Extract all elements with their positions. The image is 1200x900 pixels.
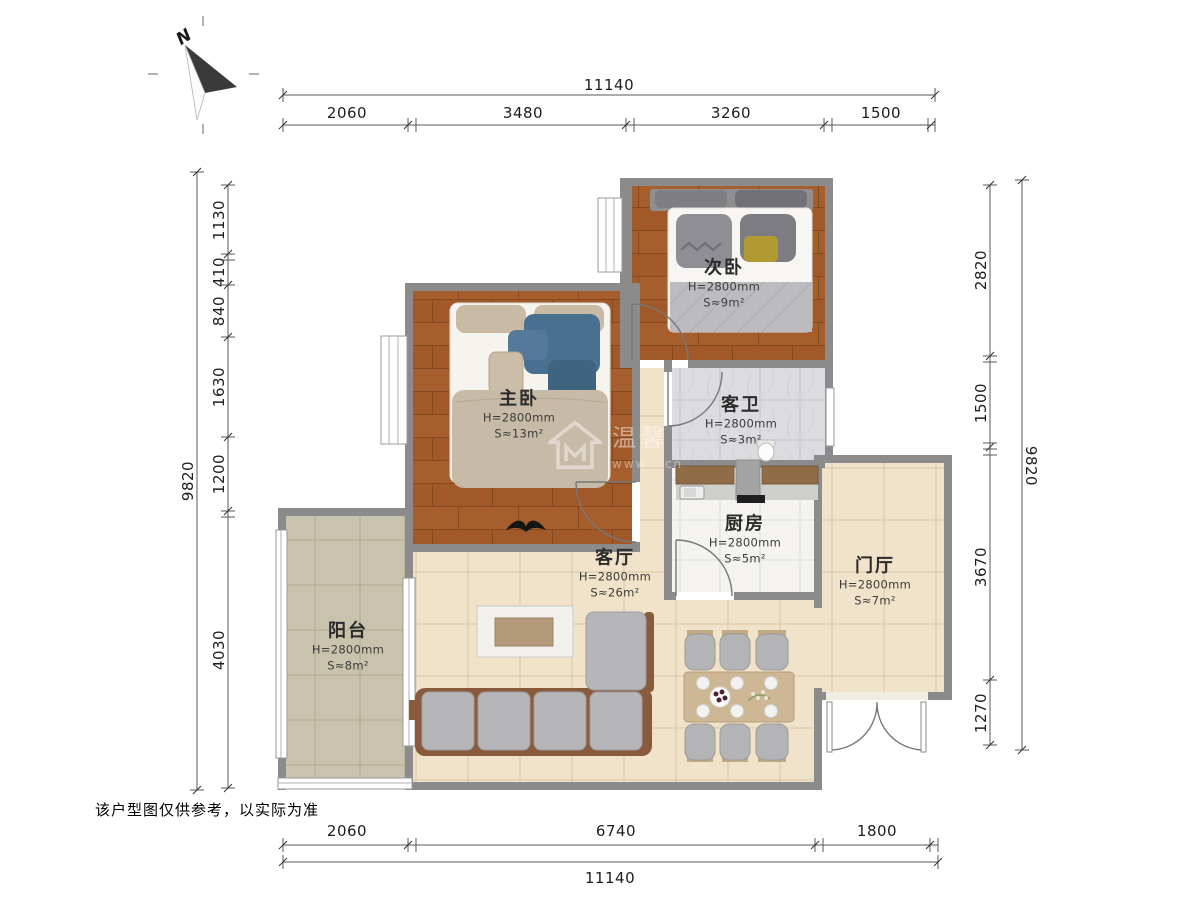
- entry-double-door: [830, 702, 924, 750]
- dim-top-total: 11140: [584, 76, 634, 94]
- dim-bottom-seg-1: 2060: [327, 822, 367, 840]
- dim-left-total: 9820: [179, 461, 197, 501]
- dim-right-seg-2: 1500: [972, 383, 990, 423]
- secondary-bedroom-window: [598, 198, 622, 272]
- dim-right-total: 9820: [1022, 446, 1040, 486]
- dim-right-seg-3: 3670: [972, 547, 990, 587]
- dim-bottom-seg-3: 1800: [857, 822, 897, 840]
- kitchen-counter: [676, 460, 818, 503]
- room-label-foyer: 门厅 H=2800mm S≈7m²: [839, 558, 911, 607]
- dim-top-seg-1: 2060: [327, 104, 367, 122]
- bathroom-window: [826, 388, 834, 446]
- dim-top-seg-2: 3480: [503, 104, 543, 122]
- dining-set: [684, 630, 794, 762]
- dim-left-seg-5: 1200: [210, 454, 228, 494]
- stove: [737, 495, 765, 503]
- entry-door-leaf-right: [921, 702, 926, 752]
- dim-top-seg-3: 3260: [711, 104, 751, 122]
- dim-top-seg-4: 1500: [861, 104, 901, 122]
- dim-right-seg-1: 2820: [972, 250, 990, 290]
- master-bedroom-window: [381, 336, 407, 444]
- dim-bottom-total: 11140: [585, 869, 635, 887]
- room-label-living-room: 客厅 H=2800mm S≈26m²: [579, 550, 651, 599]
- dim-bottom-seg-2: 6740: [596, 822, 636, 840]
- room-label-master-bedroom: 主卧 H=2800mm S≈13m²: [483, 391, 555, 440]
- dim-left-seg-3: 840: [210, 296, 228, 326]
- room-label-balcony: 阳台 H=2800mm S≈8m²: [312, 623, 384, 672]
- floor-plan-page: N 11140 2060 3480 3260 1500 9820 1130 41…: [0, 0, 1200, 900]
- balcony-door-handle: [409, 700, 416, 720]
- dim-left-seg-4: 1630: [210, 367, 228, 407]
- dim-right-seg-4: 1270: [972, 693, 990, 733]
- coffee-table: [477, 606, 573, 657]
- dim-left-seg-1: 1130: [210, 200, 228, 240]
- compass-n-label: N: [173, 25, 196, 50]
- entry-door-leaf-left: [827, 702, 832, 752]
- disclaimer-text: 该户型图仅供参考，以实际为准: [95, 799, 319, 820]
- room-label-guest-bathroom: 客卫 H=2800mm S≈3m²: [705, 397, 777, 446]
- room-label-secondary-bedroom: 次卧 H=2800mm S≈9m²: [688, 260, 760, 309]
- dim-left-seg-2: 410: [210, 257, 228, 287]
- room-label-kitchen: 厨房 H=2800mm S≈5m²: [709, 516, 781, 565]
- north-compass: N: [148, 16, 259, 134]
- floor-plan-canvas: N: [0, 0, 1200, 900]
- entry-threshold: [826, 692, 928, 700]
- dim-left-seg-6: 4030: [210, 630, 228, 670]
